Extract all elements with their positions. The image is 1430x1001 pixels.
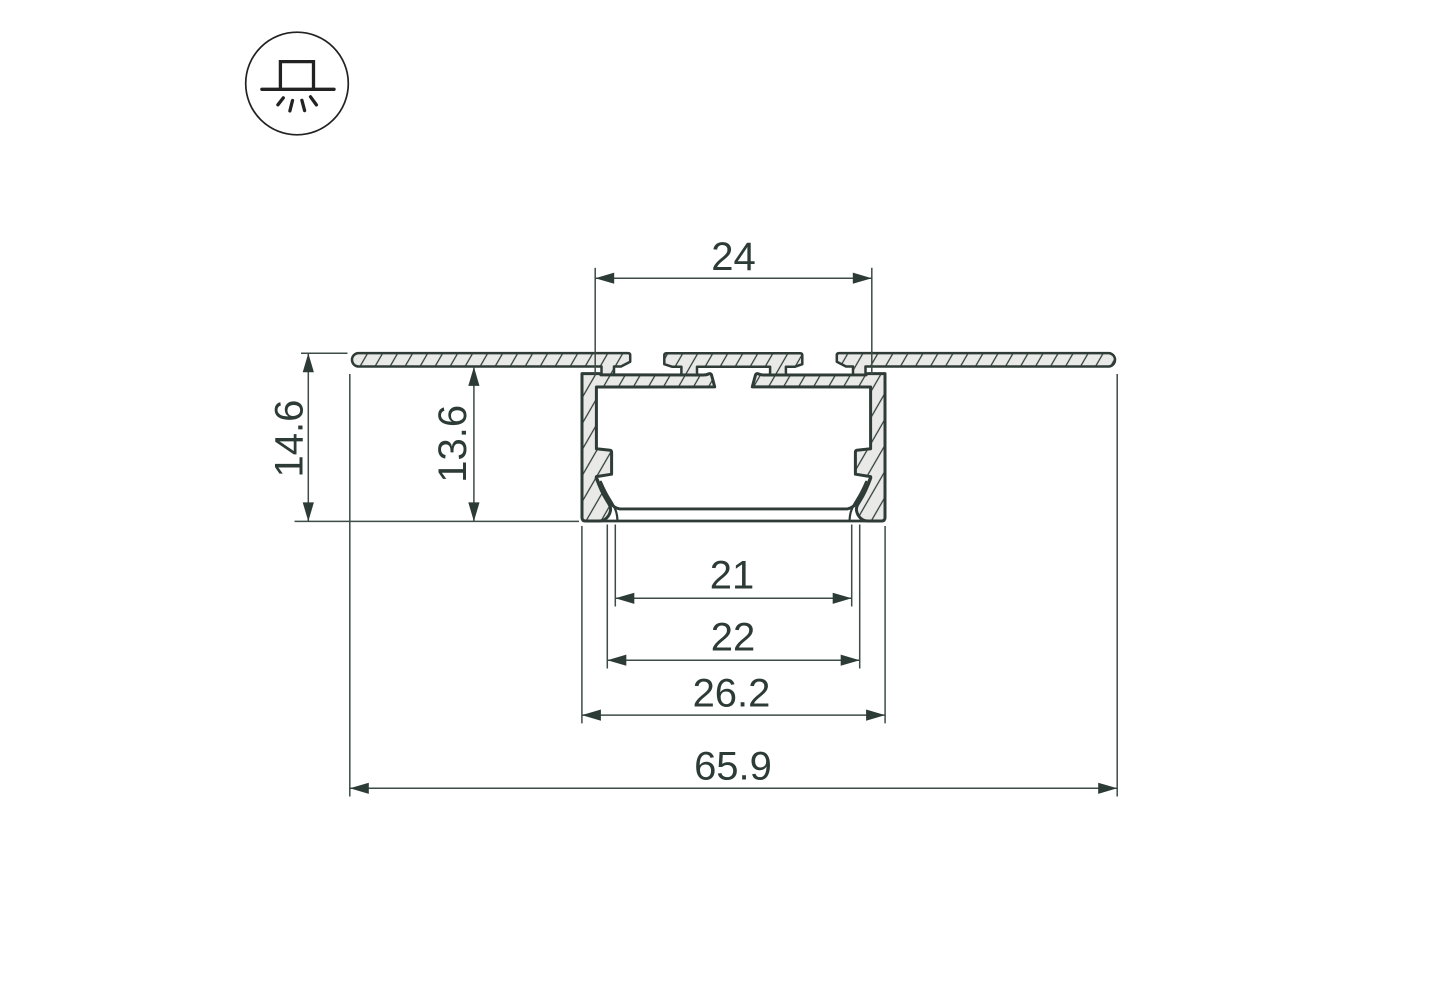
- svg-text:14.6: 14.6: [268, 400, 312, 478]
- svg-text:13.6: 13.6: [431, 405, 475, 483]
- svg-text:22: 22: [711, 615, 756, 659]
- svg-text:26.2: 26.2: [693, 672, 771, 716]
- svg-text:65.9: 65.9: [694, 745, 772, 789]
- svg-text:24: 24: [711, 235, 756, 279]
- svg-text:21: 21: [710, 554, 755, 598]
